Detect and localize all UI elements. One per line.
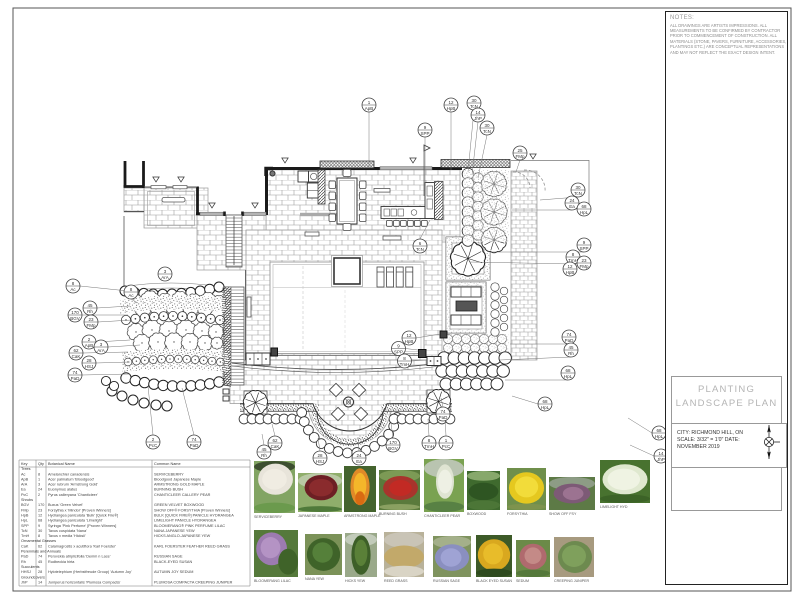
svg-text:SERVICEBERRY: SERVICEBERRY bbox=[254, 515, 283, 519]
svg-text:REED GRASS: REED GRASS bbox=[384, 579, 408, 583]
svg-text:BOXWOOD: BOXWOOD bbox=[467, 512, 487, 516]
svg-text:SHOW OFF FSY: SHOW OFF FSY bbox=[549, 512, 577, 516]
svg-text:SEDUM: SEDUM bbox=[516, 579, 529, 583]
svg-text:BLOOMERANG LILAC: BLOOMERANG LILAC bbox=[254, 579, 291, 583]
svg-text:HICKS YEW: HICKS YEW bbox=[345, 579, 366, 583]
svg-text:FORSYTHIA: FORSYTHIA bbox=[507, 512, 528, 516]
svg-text:ARMSTRONG MAPLE: ARMSTRONG MAPLE bbox=[344, 514, 381, 518]
svg-text:NANA YEW: NANA YEW bbox=[305, 577, 325, 581]
svg-text:JAPANESE MAPLE: JAPANESE MAPLE bbox=[298, 514, 330, 518]
svg-text:LIMELIGHT HYD: LIMELIGHT HYD bbox=[600, 505, 628, 509]
svg-text:BLACK EYED SUSAN: BLACK EYED SUSAN bbox=[476, 579, 512, 583]
svg-text:CHANTICLEER PEAR: CHANTICLEER PEAR bbox=[424, 514, 461, 518]
svg-text:BURNING BUSH: BURNING BUSH bbox=[379, 512, 407, 516]
svg-text:RUSSIAN SAGE: RUSSIAN SAGE bbox=[433, 579, 461, 583]
svg-text:CREEPING JUNIPER: CREEPING JUNIPER bbox=[554, 579, 590, 583]
